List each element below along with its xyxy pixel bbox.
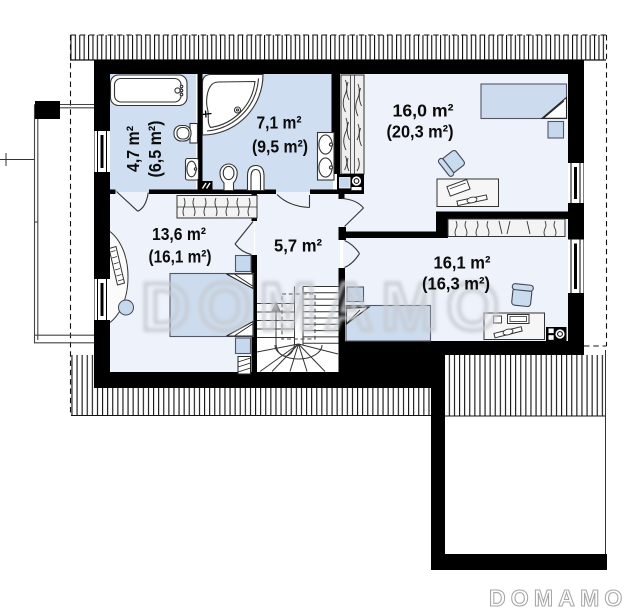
- svg-text:13,6 m²: 13,6 m²: [152, 224, 206, 244]
- svg-text:(16,1 m²): (16,1 m²): [149, 247, 212, 267]
- svg-text:16,0 m²: 16,0 m²: [393, 101, 454, 121]
- svg-text:(6,5 m²): (6,5 m²): [145, 121, 165, 178]
- svg-text:5,7 m²: 5,7 m²: [274, 236, 322, 256]
- svg-text:4,7 m²: 4,7 m²: [123, 126, 143, 172]
- svg-text:(20,3 m²): (20,3 m²): [387, 122, 454, 142]
- svg-text:DOMAMO: DOMAMO: [489, 585, 628, 611]
- svg-text:16,1 m²: 16,1 m²: [434, 253, 491, 273]
- svg-text:(9,5 m²): (9,5 m²): [252, 137, 308, 157]
- svg-text:7,1 m²: 7,1 m²: [257, 113, 302, 133]
- svg-text:(16,3 m²): (16,3 m²): [422, 274, 490, 294]
